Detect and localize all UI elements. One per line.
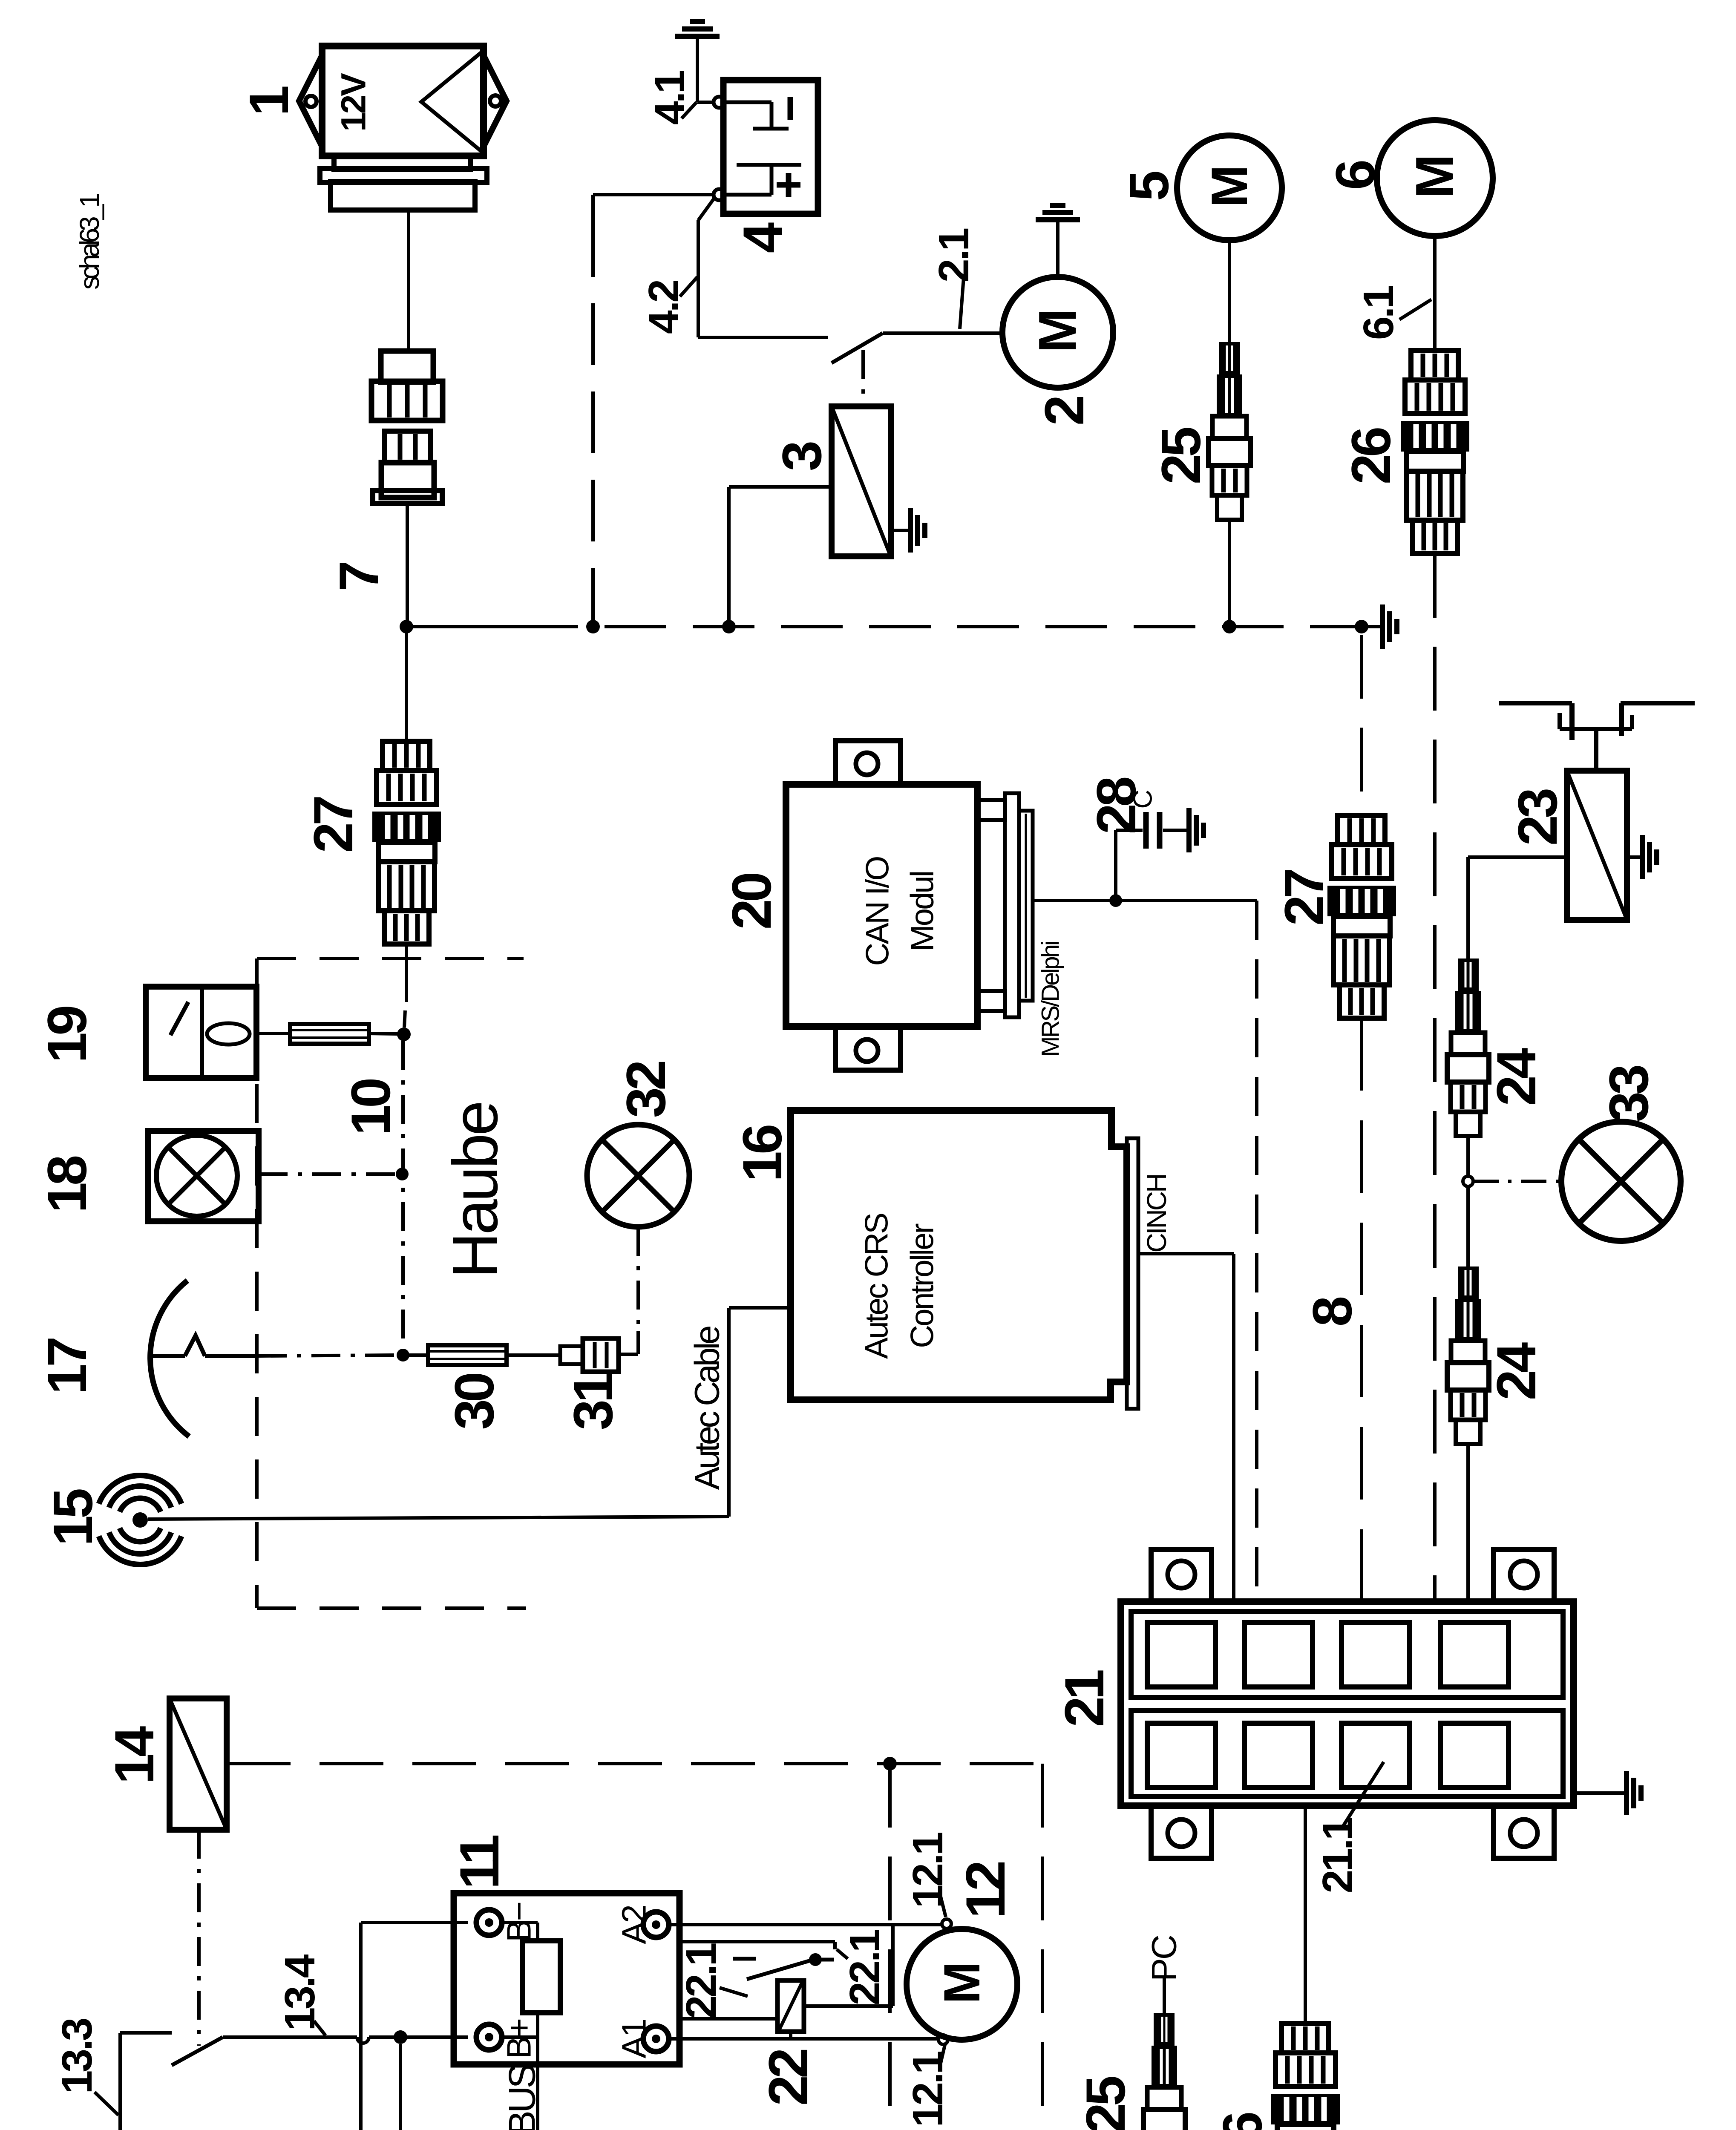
svg-text:M: M xyxy=(1405,158,1465,199)
svg-text:18: 18 xyxy=(36,1156,98,1213)
svg-text:CAN I/O: CAN I/O xyxy=(860,857,896,966)
svg-text:31: 31 xyxy=(562,1373,624,1430)
svg-text:13.4: 13.4 xyxy=(276,1954,324,2031)
svg-text:Autec Cable: Autec Cable xyxy=(688,1327,727,1490)
svg-text:3: 3 xyxy=(771,442,833,471)
svg-text:7: 7 xyxy=(328,563,390,591)
svg-text:Modul: Modul xyxy=(904,872,941,952)
svg-text:schal63_1: schal63_1 xyxy=(74,194,105,290)
svg-text:26: 26 xyxy=(1211,2113,1273,2130)
svg-text:B+: B+ xyxy=(500,2020,538,2059)
svg-text:A1: A1 xyxy=(615,2020,653,2058)
svg-text:12V: 12V xyxy=(334,73,373,132)
svg-text:14: 14 xyxy=(103,1726,165,1784)
svg-text:12: 12 xyxy=(954,1862,1016,1918)
svg-text:4.1: 4.1 xyxy=(646,71,694,125)
svg-text:27: 27 xyxy=(1273,870,1335,926)
svg-text:23: 23 xyxy=(1506,789,1569,846)
svg-text:27: 27 xyxy=(302,797,364,853)
svg-text:12.1: 12.1 xyxy=(904,1833,952,1908)
svg-text:25: 25 xyxy=(1150,428,1212,484)
svg-text:Controller: Controller xyxy=(904,1223,941,1348)
svg-text:MRS/Delphi: MRS/Delphi xyxy=(1037,942,1065,1057)
svg-text:M: M xyxy=(933,1965,990,2004)
svg-text:25: 25 xyxy=(1074,2077,1137,2130)
svg-text:4: 4 xyxy=(731,222,794,253)
svg-text:12.1: 12.1 xyxy=(904,2052,952,2127)
svg-text:24: 24 xyxy=(1485,1342,1547,1400)
svg-text:33: 33 xyxy=(1598,1066,1660,1122)
svg-text:22: 22 xyxy=(757,2049,819,2106)
svg-text:24: 24 xyxy=(1485,1048,1547,1106)
svg-text:Haube: Haube xyxy=(439,1103,511,1278)
svg-text:6.1: 6.1 xyxy=(1355,286,1402,340)
svg-text:17: 17 xyxy=(36,1338,98,1394)
svg-text:22.1: 22.1 xyxy=(677,1943,725,2019)
svg-text:32: 32 xyxy=(615,1062,677,1118)
svg-text:8: 8 xyxy=(1301,1297,1363,1327)
svg-text:26: 26 xyxy=(1340,428,1402,484)
svg-text:22.1: 22.1 xyxy=(841,1930,889,2005)
svg-text:M: M xyxy=(1201,168,1258,207)
svg-text:13.3: 13.3 xyxy=(53,2019,101,2094)
svg-text:19: 19 xyxy=(36,1007,98,1063)
svg-text:21.1: 21.1 xyxy=(1314,1818,1362,1893)
svg-text:PC: PC xyxy=(1145,1935,1184,1981)
svg-text:4.2: 4.2 xyxy=(640,281,688,334)
svg-text:2.1: 2.1 xyxy=(930,229,978,282)
svg-text:28: 28 xyxy=(1085,777,1147,834)
svg-text:1: 1 xyxy=(238,86,300,116)
svg-text:30: 30 xyxy=(443,1374,505,1430)
svg-text:CINCH: CINCH xyxy=(1141,1175,1172,1253)
svg-text:15: 15 xyxy=(42,1489,104,1546)
svg-text:A2: A2 xyxy=(615,1906,653,1944)
svg-text:16: 16 xyxy=(731,1125,793,1182)
svg-text:Autec CRS: Autec CRS xyxy=(859,1214,895,1359)
svg-text:M: M xyxy=(1028,312,1088,353)
svg-text:5: 5 xyxy=(1118,172,1180,201)
svg-text:2: 2 xyxy=(1033,397,1095,426)
svg-text:21: 21 xyxy=(1053,1670,1115,1727)
svg-text:11: 11 xyxy=(448,1836,510,1889)
svg-text:10: 10 xyxy=(340,1079,402,1135)
svg-text:20: 20 xyxy=(720,874,783,930)
